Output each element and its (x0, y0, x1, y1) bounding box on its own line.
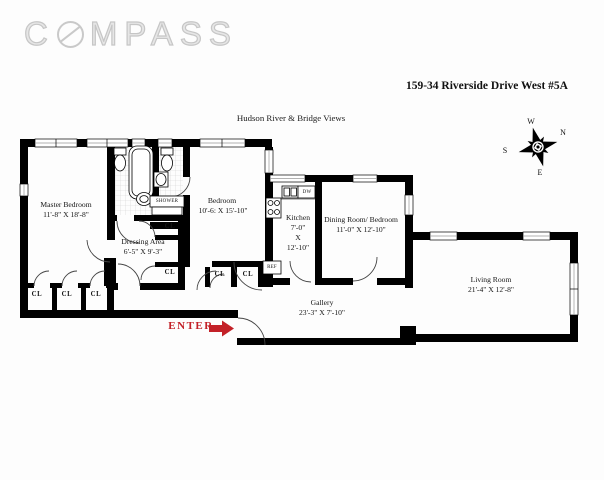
window (200, 139, 245, 147)
window (265, 150, 273, 173)
bathtub (129, 146, 153, 199)
vanity-sink (154, 172, 168, 187)
window (570, 263, 578, 315)
dim-label-living-room: 21'-4" X 12'-8" (468, 286, 514, 294)
window (353, 175, 377, 182)
window (87, 139, 128, 147)
dim-label-kitchen-3: 12'-10" (287, 244, 309, 252)
room-label-gallery: Gallery (311, 299, 334, 307)
window (20, 184, 28, 196)
floor-plan-drawing: W N S E (0, 0, 604, 480)
dim-label-kitchen-1: 7'-0" (291, 224, 306, 232)
window (158, 139, 172, 147)
dim-label-dressing-area: 6'-5" X 9'-3" (124, 248, 162, 256)
toilet (161, 148, 173, 171)
room-label-bedroom: Bedroom (208, 197, 236, 205)
room-label-dressing-area: Dressing Area (121, 238, 164, 246)
compass-n: N (560, 128, 566, 137)
window (523, 232, 550, 240)
dim-label-kitchen-2: X (295, 234, 300, 242)
toilet (114, 148, 126, 171)
window (270, 175, 305, 182)
closet-label: CL (243, 272, 254, 279)
window (405, 195, 413, 215)
floor-plan-page: C MPASS 159-34 Riverside Drive West #5A … (0, 0, 604, 480)
room-label-kitchen: Kitchen (286, 214, 310, 222)
room-label-dining-room: Dining Room/ Bedroom (324, 216, 398, 224)
room-label-master-bedroom: Master Bedroom (40, 201, 91, 209)
pedestal-sink (137, 193, 152, 206)
dishwasher-label: DW (303, 190, 312, 195)
enter-label: ENTER (168, 321, 213, 332)
shower-stall (152, 207, 182, 215)
dim-label-gallery: 23'-3" X 7'-10" (299, 309, 345, 317)
dim-label-dining-room: 11'-0" X 12'-10" (336, 226, 386, 234)
compass-e: E (538, 168, 543, 177)
window (430, 232, 457, 240)
window (35, 139, 77, 147)
closet-label: CL (165, 270, 176, 277)
stove (266, 198, 281, 218)
kitchen-sink (282, 186, 298, 198)
closet-label: CL (32, 292, 43, 299)
compass-w: W (527, 117, 535, 126)
refrigerator-label: REF (267, 265, 277, 270)
shower-label: SHOWER (156, 199, 178, 204)
closet-label: CL (91, 292, 102, 299)
closet-label: CL (165, 224, 176, 231)
dim-label-master-bedroom: 11'-8" X 18'-8" (43, 211, 89, 219)
compass-s: S (503, 146, 507, 155)
room-label-living-room: Living Room (471, 276, 512, 284)
closet-label: CL (62, 292, 73, 299)
dim-label-bedroom: 10'-6: X 15'-10" (199, 207, 248, 215)
compass-rose-icon: W N S E (503, 117, 566, 177)
closet-label: CL (215, 272, 226, 279)
